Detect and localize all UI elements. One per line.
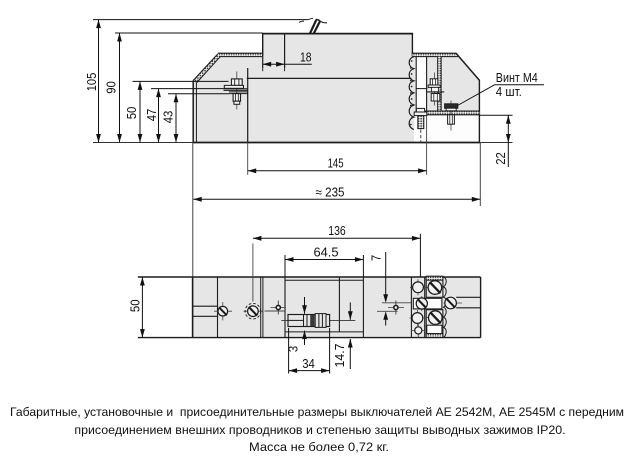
svg-text:Габаритные, установочные и пр: Габаритные, установочные и присоединител…	[10, 405, 624, 419]
svg-text:90: 90	[105, 81, 119, 94]
svg-text:присоединением внешних проводн: присоединением внешних проводников и сте…	[74, 423, 565, 437]
svg-text:7: 7	[370, 255, 384, 261]
svg-text:136: 136	[328, 224, 346, 238]
svg-text:105: 105	[85, 73, 99, 92]
svg-text:64.5: 64.5	[314, 245, 339, 259]
svg-text:≈ 235: ≈ 235	[316, 186, 345, 200]
svg-text:145: 145	[328, 157, 344, 171]
svg-text:4 шт.: 4 шт.	[496, 84, 522, 99]
svg-text:14.7: 14.7	[333, 344, 347, 368]
svg-text:34: 34	[302, 357, 315, 371]
svg-text:Масса не более 0,72 кг.: Масса не более 0,72 кг.	[249, 440, 389, 454]
svg-text:47: 47	[145, 109, 159, 122]
svg-text:50: 50	[129, 300, 143, 313]
svg-text:Винт М4: Винт М4	[496, 70, 538, 85]
svg-text:43: 43	[162, 111, 176, 124]
svg-text:22: 22	[494, 152, 508, 165]
svg-text:18: 18	[300, 51, 312, 65]
svg-text:50: 50	[125, 107, 139, 120]
